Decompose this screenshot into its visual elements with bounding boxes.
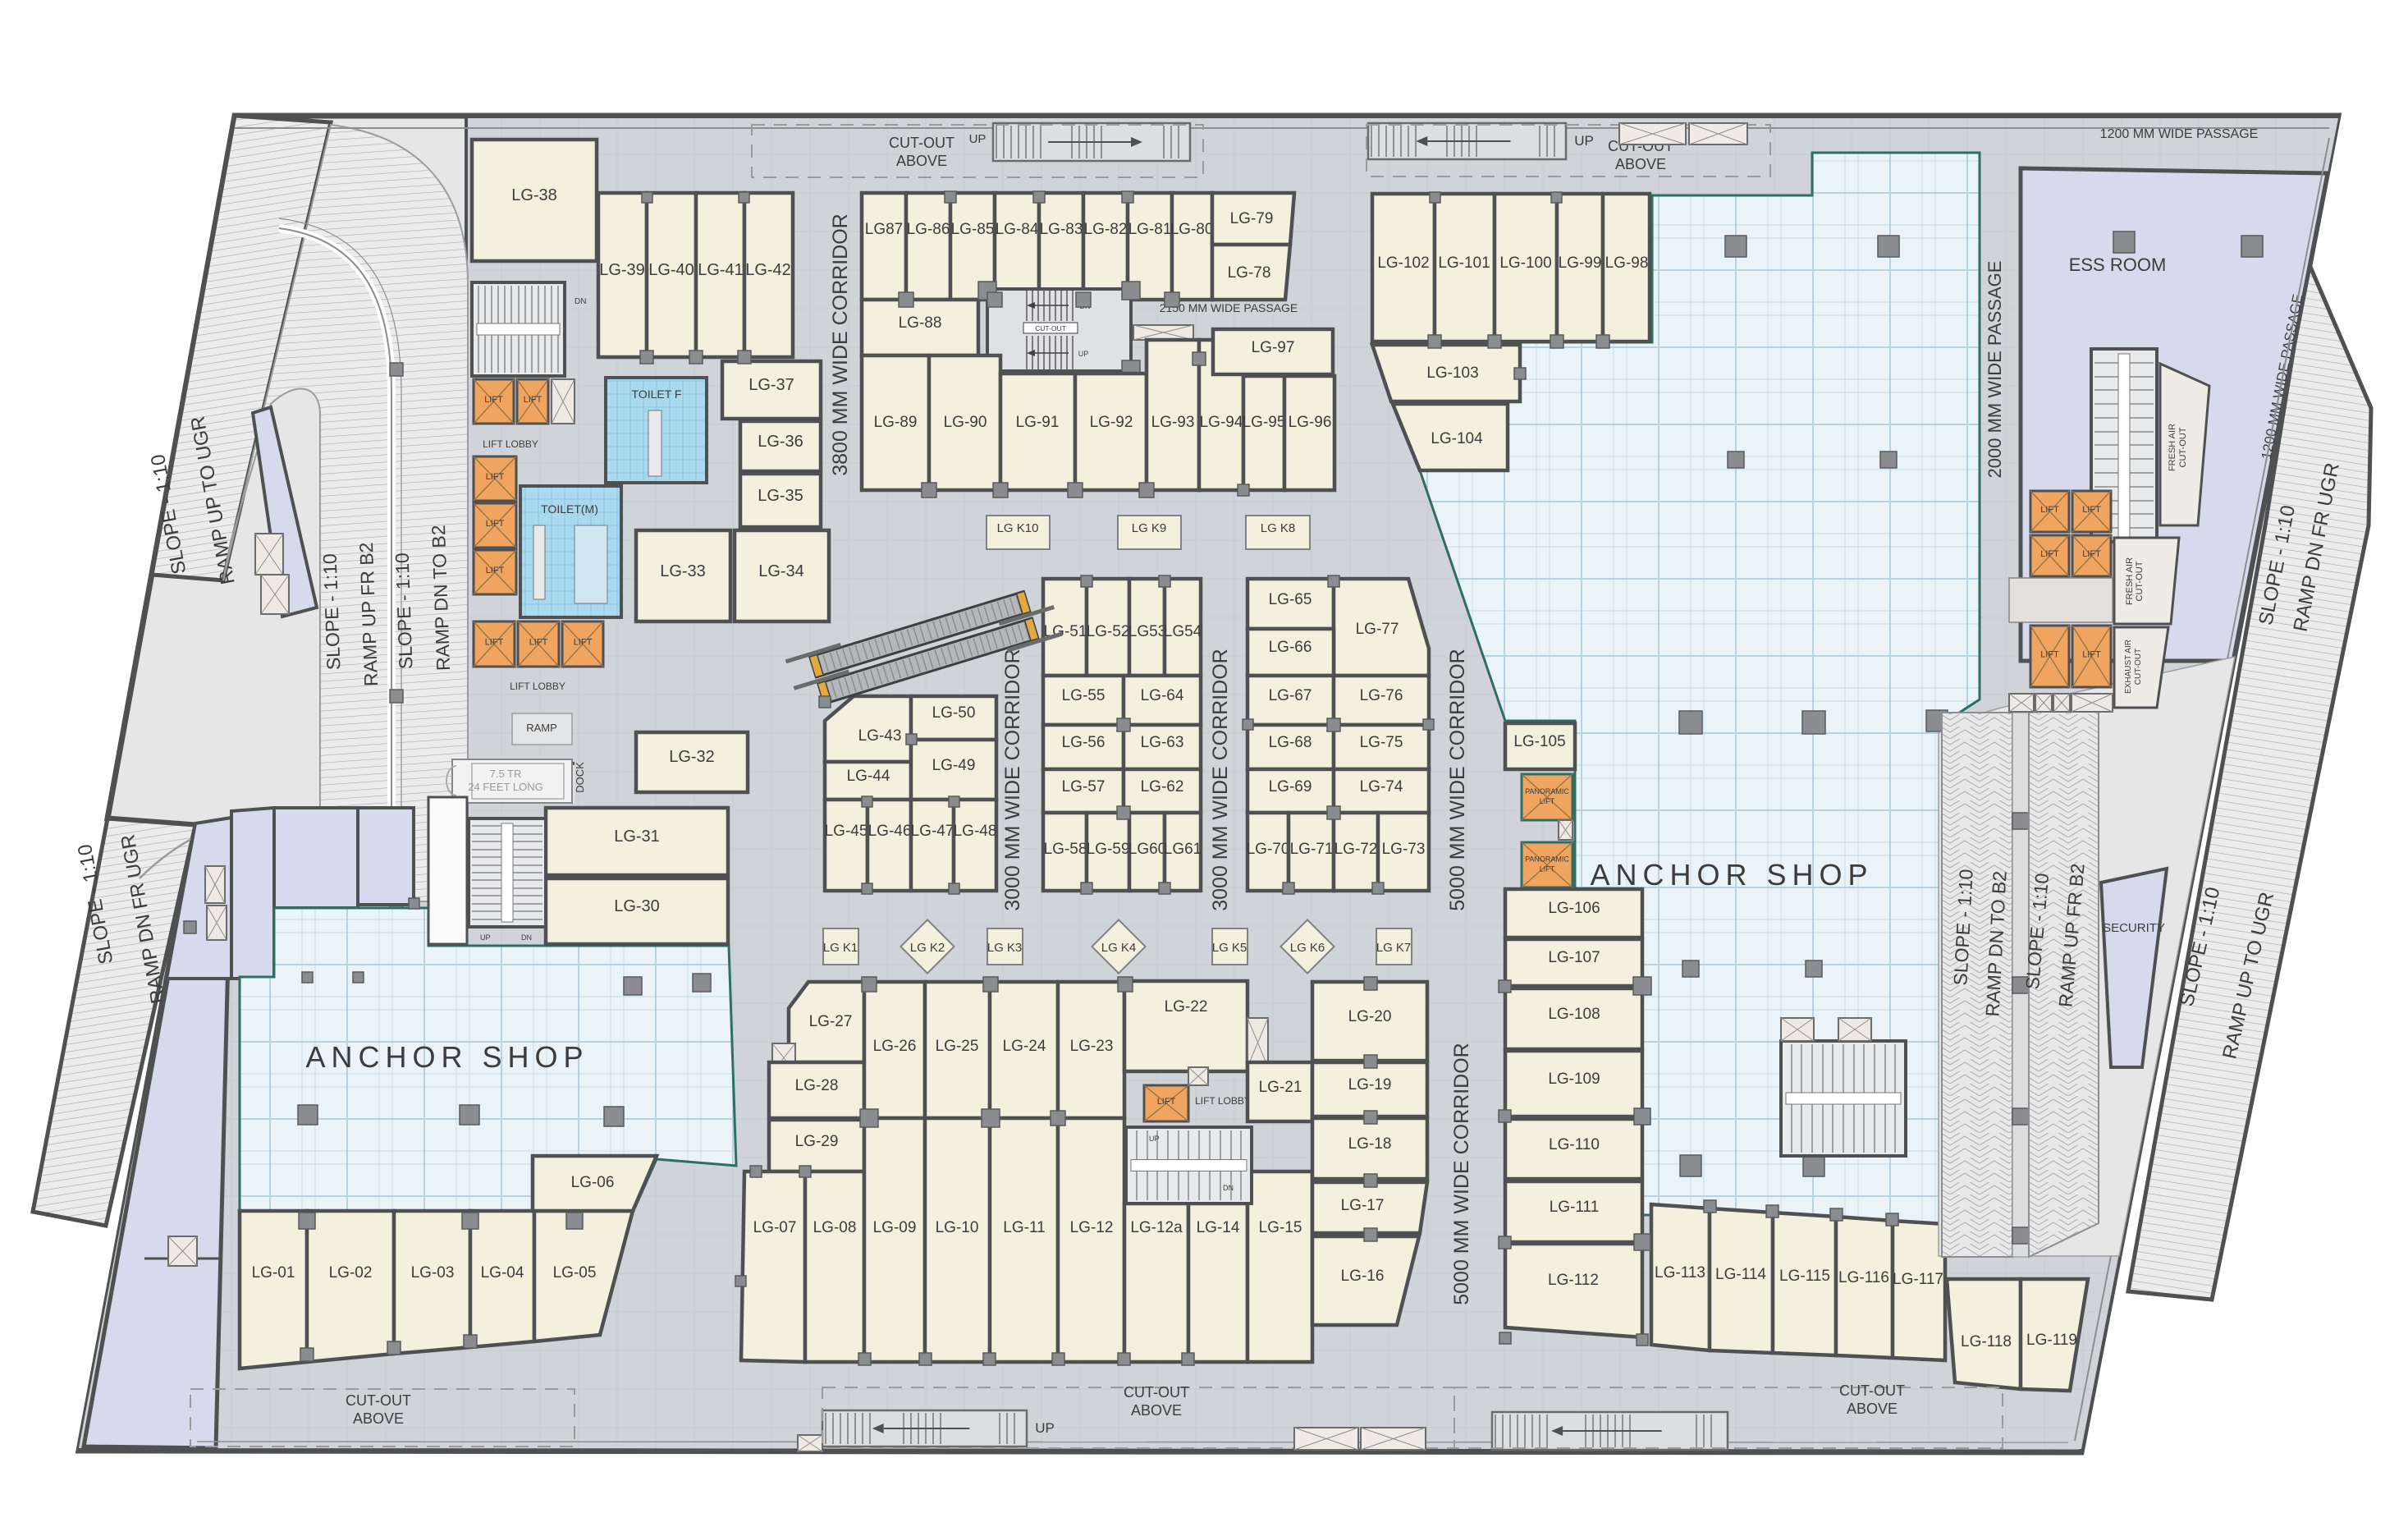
svg-text:LG-27: LG-27 xyxy=(809,1013,853,1030)
svg-text:LG-12a: LG-12a xyxy=(1130,1219,1183,1236)
svg-text:LG-64: LG-64 xyxy=(1141,687,1184,704)
svg-text:PANORAMIC: PANORAMIC xyxy=(1525,855,1569,864)
svg-text:LG-30: LG-30 xyxy=(614,897,660,915)
svg-text:2000 MM WIDE PASSAGE: 2000 MM WIDE PASSAGE xyxy=(1985,261,2005,479)
svg-text:LG-110: LG-110 xyxy=(1549,1136,1600,1153)
svg-text:LG-78: LG-78 xyxy=(1228,264,1271,282)
svg-text:UP: UP xyxy=(1574,133,1594,149)
svg-text:LG-03: LG-03 xyxy=(411,1264,455,1282)
svg-text:LG-114: LG-114 xyxy=(1715,1266,1766,1283)
svg-text:ABOVE: ABOVE xyxy=(896,153,947,169)
svg-text:ABOVE: ABOVE xyxy=(1847,1401,1898,1417)
svg-text:LG-31: LG-31 xyxy=(614,828,660,846)
svg-text:LG-63: LG-63 xyxy=(1141,734,1184,751)
svg-text:LG-52: LG-52 xyxy=(1087,623,1130,640)
svg-text:LG-48: LG-48 xyxy=(954,823,997,840)
svg-text:LG K4: LG K4 xyxy=(1101,941,1137,955)
svg-text:LG-81: LG-81 xyxy=(1128,221,1172,238)
svg-text:LG-85: LG-85 xyxy=(951,221,995,238)
svg-text:RAMP: RAMP xyxy=(526,722,557,734)
svg-text:LG-71: LG-71 xyxy=(1290,841,1334,858)
svg-text:UP: UP xyxy=(969,132,987,146)
svg-text:LG-44: LG-44 xyxy=(847,768,890,785)
svg-text:UP: UP xyxy=(480,933,491,942)
svg-text:LG K8: LG K8 xyxy=(1261,521,1296,535)
svg-text:LG-111: LG-111 xyxy=(1550,1199,1600,1216)
svg-text:LG-119: LG-119 xyxy=(2026,1332,2077,1349)
svg-text:LG K10: LG K10 xyxy=(997,521,1039,535)
svg-text:SLOPE - 1:10: SLOPE - 1:10 xyxy=(391,553,417,670)
svg-text:LG-09: LG-09 xyxy=(873,1219,917,1236)
svg-text:24 FEET LONG: 24 FEET LONG xyxy=(468,781,543,793)
svg-text:LG-56: LG-56 xyxy=(1062,734,1106,751)
svg-text:LG-113: LG-113 xyxy=(1655,1264,1705,1282)
svg-text:LG-36: LG-36 xyxy=(758,433,803,451)
svg-text:LG-57: LG-57 xyxy=(1062,778,1106,796)
svg-text:LG-46: LG-46 xyxy=(868,823,912,840)
svg-text:LG-98: LG-98 xyxy=(1605,254,1649,272)
svg-text:ABOVE: ABOVE xyxy=(353,1410,404,1427)
svg-text:LG-12: LG-12 xyxy=(1070,1219,1114,1236)
svg-text:LG-74: LG-74 xyxy=(1360,778,1403,796)
svg-text:CUT-OUT: CUT-OUT xyxy=(1124,1384,1189,1401)
svg-text:LIFT: LIFT xyxy=(2082,549,2101,559)
svg-text:LG-112: LG-112 xyxy=(1548,1272,1599,1289)
svg-text:LG-29: LG-29 xyxy=(795,1133,839,1150)
svg-text:LG-04: LG-04 xyxy=(481,1264,524,1282)
svg-text:UP: UP xyxy=(1035,1420,1055,1436)
svg-text:LG-65: LG-65 xyxy=(1269,591,1312,608)
svg-text:SLOPE - 1:10: SLOPE - 1:10 xyxy=(319,553,345,671)
svg-text:DN: DN xyxy=(575,297,586,306)
svg-text:LIFT: LIFT xyxy=(1540,797,1555,805)
svg-text:LG-15: LG-15 xyxy=(1259,1219,1302,1236)
svg-text:LG K1: LG K1 xyxy=(823,941,858,955)
svg-text:LG-05: LG-05 xyxy=(553,1264,597,1282)
svg-text:5000 MM WIDE CORRIDOR: 5000 MM WIDE CORRIDOR xyxy=(1446,649,1469,910)
svg-text:LG-83: LG-83 xyxy=(1040,221,1083,238)
svg-text:LG-23: LG-23 xyxy=(1070,1038,1114,1055)
svg-text:7.5 TR: 7.5 TR xyxy=(490,768,522,780)
svg-text:LG-14: LG-14 xyxy=(1197,1219,1240,1236)
svg-text:UP: UP xyxy=(1078,350,1089,358)
svg-text:ABOVE: ABOVE xyxy=(1615,156,1666,172)
svg-text:ESS ROOM: ESS ROOM xyxy=(2069,254,2167,275)
svg-text:CUT-OUT: CUT-OUT xyxy=(1035,324,1066,332)
svg-text:DN: DN xyxy=(1223,1184,1234,1192)
svg-text:LG-08: LG-08 xyxy=(813,1219,857,1236)
svg-text:LIFT: LIFT xyxy=(486,472,505,482)
svg-text:LG-32: LG-32 xyxy=(669,748,715,766)
svg-text:LG61: LG61 xyxy=(1164,841,1202,858)
svg-text:LG-101: LG-101 xyxy=(1438,254,1490,272)
svg-text:EXHAUST AIR: EXHAUST AIR xyxy=(2124,640,2133,694)
svg-text:LG-109: LG-109 xyxy=(1548,1071,1600,1088)
svg-text:LG-39: LG-39 xyxy=(599,261,645,279)
svg-text:3000 MM WIDE CORRIDOR: 3000 MM WIDE CORRIDOR xyxy=(1001,649,1024,910)
svg-text:LG-91: LG-91 xyxy=(1016,414,1060,431)
svg-text:CUT-OUT: CUT-OUT xyxy=(2135,561,2145,601)
svg-text:LG-43: LG-43 xyxy=(858,727,902,745)
svg-text:LG-47: LG-47 xyxy=(911,823,955,840)
svg-text:LIFT LOBBY: LIFT LOBBY xyxy=(483,438,538,450)
svg-text:LIFT: LIFT xyxy=(1157,1097,1176,1107)
svg-text:LG K2: LG K2 xyxy=(910,941,945,955)
svg-text:LIFT: LIFT xyxy=(1540,865,1555,873)
svg-text:LG-115: LG-115 xyxy=(1779,1268,1830,1285)
svg-text:FRESH AIR: FRESH AIR xyxy=(2168,424,2177,471)
svg-text:LG-88: LG-88 xyxy=(899,314,942,332)
svg-text:LG-90: LG-90 xyxy=(944,414,987,431)
svg-text:LG-75: LG-75 xyxy=(1360,734,1403,751)
svg-text:LG-82: LG-82 xyxy=(1084,221,1128,238)
svg-text:LIFT: LIFT xyxy=(524,395,542,405)
svg-text:LG-16: LG-16 xyxy=(1341,1268,1385,1285)
svg-text:PANORAMIC: PANORAMIC xyxy=(1525,787,1569,796)
svg-text:LG-108: LG-108 xyxy=(1548,1006,1600,1023)
svg-text:TOILET F: TOILET F xyxy=(632,387,682,401)
svg-text:LG-21: LG-21 xyxy=(1259,1079,1302,1096)
svg-text:2150 MM WIDE PASSAGE: 2150 MM WIDE PASSAGE xyxy=(1160,301,1298,314)
svg-text:LG-94: LG-94 xyxy=(1200,414,1243,431)
svg-text:LG-66: LG-66 xyxy=(1269,639,1312,656)
svg-text:LG-89: LG-89 xyxy=(874,414,918,431)
svg-text:LG-01: LG-01 xyxy=(252,1264,295,1282)
svg-text:LG-80: LG-80 xyxy=(1170,221,1214,238)
svg-text:LG-103: LG-103 xyxy=(1426,365,1478,382)
svg-text:LIFT: LIFT xyxy=(2082,505,2101,515)
svg-text:LG53: LG53 xyxy=(1128,623,1166,640)
svg-text:LIFT: LIFT xyxy=(2040,505,2059,515)
svg-text:LG-42: LG-42 xyxy=(745,261,791,279)
svg-text:LG-28: LG-28 xyxy=(795,1077,839,1094)
svg-text:LG-99: LG-99 xyxy=(1559,254,1602,272)
svg-text:LG-26: LG-26 xyxy=(873,1038,917,1055)
svg-text:LG-86: LG-86 xyxy=(907,221,950,238)
svg-text:LG-70: LG-70 xyxy=(1247,841,1290,858)
svg-text:LG K9: LG K9 xyxy=(1132,521,1167,535)
svg-text:LG-104: LG-104 xyxy=(1431,430,1483,447)
svg-text:CUT-OUT: CUT-OUT xyxy=(2178,427,2188,467)
svg-text:LG-18: LG-18 xyxy=(1348,1135,1392,1153)
svg-text:UP: UP xyxy=(1149,1135,1160,1143)
svg-text:LG-72: LG-72 xyxy=(1334,841,1378,858)
svg-text:LIFT: LIFT xyxy=(485,638,504,648)
svg-text:LG-77: LG-77 xyxy=(1356,621,1399,638)
svg-text:CUT-OUT: CUT-OUT xyxy=(2134,649,2143,685)
svg-text:LG-20: LG-20 xyxy=(1348,1008,1392,1025)
svg-text:LG-34: LG-34 xyxy=(758,562,804,580)
svg-text:LIFT LOBBY: LIFT LOBBY xyxy=(1195,1095,1251,1107)
svg-text:LG-107: LG-107 xyxy=(1548,949,1600,966)
svg-text:3000 MM WIDE CORRIDOR: 3000 MM WIDE CORRIDOR xyxy=(1209,649,1232,910)
svg-text:LG-11: LG-11 xyxy=(1003,1219,1045,1236)
svg-text:LG-93: LG-93 xyxy=(1151,414,1195,431)
svg-text:LG K7: LG K7 xyxy=(1376,941,1412,955)
svg-text:LG-02: LG-02 xyxy=(329,1264,373,1282)
svg-text:LG-100: LG-100 xyxy=(1499,254,1551,272)
svg-text:LG54: LG54 xyxy=(1164,623,1202,640)
svg-text:LG-73: LG-73 xyxy=(1382,841,1426,858)
svg-text:LG-35: LG-35 xyxy=(758,487,803,505)
svg-text:3800 MM WIDE CORRIDOR: 3800 MM WIDE CORRIDOR xyxy=(829,213,852,475)
svg-text:LG-117: LG-117 xyxy=(1893,1271,1943,1288)
svg-text:LG-40: LG-40 xyxy=(648,261,694,279)
svg-text:LG-37: LG-37 xyxy=(748,376,794,394)
svg-text:LG-59: LG-59 xyxy=(1087,841,1130,858)
svg-text:LG-22: LG-22 xyxy=(1165,998,1208,1016)
svg-text:LG-06: LG-06 xyxy=(571,1174,615,1191)
svg-text:FRESH AIR: FRESH AIR xyxy=(2125,557,2135,605)
svg-text:LIFT: LIFT xyxy=(486,566,505,575)
svg-text:LG-116: LG-116 xyxy=(1838,1269,1889,1286)
svg-text:LG-79: LG-79 xyxy=(1230,210,1274,227)
svg-text:LG-41: LG-41 xyxy=(698,261,744,279)
svg-text:ABOVE: ABOVE xyxy=(1131,1402,1182,1419)
svg-text:LG-62: LG-62 xyxy=(1141,778,1184,796)
svg-text:LG-10: LG-10 xyxy=(936,1219,979,1236)
svg-text:LIFT: LIFT xyxy=(484,395,503,405)
svg-text:LG-118: LG-118 xyxy=(1961,1333,2012,1350)
svg-text:LG-95: LG-95 xyxy=(1243,414,1286,431)
svg-text:DN: DN xyxy=(521,933,532,942)
svg-text:LG-68: LG-68 xyxy=(1269,734,1312,751)
svg-text:LG-38: LG-38 xyxy=(511,186,557,204)
svg-text:LG K5: LG K5 xyxy=(1212,941,1247,955)
svg-text:LG-24: LG-24 xyxy=(1003,1038,1046,1055)
svg-text:CUT-OUT: CUT-OUT xyxy=(889,135,955,151)
svg-text:LG60: LG60 xyxy=(1128,841,1166,858)
svg-text:LG-97: LG-97 xyxy=(1252,339,1295,356)
svg-text:LG-84: LG-84 xyxy=(996,221,1039,238)
svg-text:LG K6: LG K6 xyxy=(1290,941,1325,955)
svg-text:LG-105: LG-105 xyxy=(1513,733,1565,750)
svg-text:LG-76: LG-76 xyxy=(1360,687,1403,704)
svg-text:CUT-OUT: CUT-OUT xyxy=(346,1392,411,1409)
svg-text:LG-92: LG-92 xyxy=(1090,414,1133,431)
svg-text:1200 MM WIDE PASSAGE: 1200 MM WIDE PASSAGE xyxy=(2100,127,2259,141)
svg-text:LG-17: LG-17 xyxy=(1341,1197,1385,1214)
svg-text:LIFT: LIFT xyxy=(2040,650,2059,660)
svg-text:LG-96: LG-96 xyxy=(1289,414,1332,431)
svg-text:LIFT: LIFT xyxy=(2082,650,2101,660)
svg-text:LG-102: LG-102 xyxy=(1377,254,1429,272)
svg-text:LG-50: LG-50 xyxy=(932,704,976,722)
svg-text:LG-69: LG-69 xyxy=(1269,778,1312,796)
svg-text:SECURITY: SECURITY xyxy=(2103,921,2165,935)
svg-text:LG-58: LG-58 xyxy=(1044,841,1087,858)
svg-text:CUT-OUT: CUT-OUT xyxy=(1839,1382,1905,1399)
svg-text:LG-33: LG-33 xyxy=(660,562,706,580)
svg-text:LG-45: LG-45 xyxy=(825,823,868,840)
svg-text:LG-106: LG-106 xyxy=(1548,900,1600,917)
svg-text:TOILET(M): TOILET(M) xyxy=(541,502,598,516)
svg-text:LIFT: LIFT xyxy=(2040,549,2059,559)
svg-text:LG-67: LG-67 xyxy=(1269,687,1312,704)
svg-text:LG K3: LG K3 xyxy=(987,941,1023,955)
svg-text:LIFT: LIFT xyxy=(529,638,548,648)
svg-text:LIFT LOBBY: LIFT LOBBY xyxy=(510,681,565,692)
svg-text:LG-49: LG-49 xyxy=(932,757,976,774)
svg-text:LG-25: LG-25 xyxy=(936,1038,979,1055)
svg-text:ANCHOR SHOP: ANCHOR SHOP xyxy=(305,1040,588,1074)
svg-text:LIFT: LIFT xyxy=(486,519,505,529)
svg-text:LG87: LG87 xyxy=(865,221,903,238)
svg-text:5000 MM WIDE CORRIDOR: 5000 MM WIDE CORRIDOR xyxy=(1450,1043,1473,1304)
svg-text:ANCHOR SHOP: ANCHOR SHOP xyxy=(1590,858,1873,892)
svg-text:LG-55: LG-55 xyxy=(1062,687,1106,704)
svg-text:LG-19: LG-19 xyxy=(1348,1076,1392,1094)
svg-text:LIFT: LIFT xyxy=(574,638,593,648)
svg-text:LG-07: LG-07 xyxy=(753,1219,797,1236)
svg-text:DOCK: DOCK xyxy=(574,762,586,793)
